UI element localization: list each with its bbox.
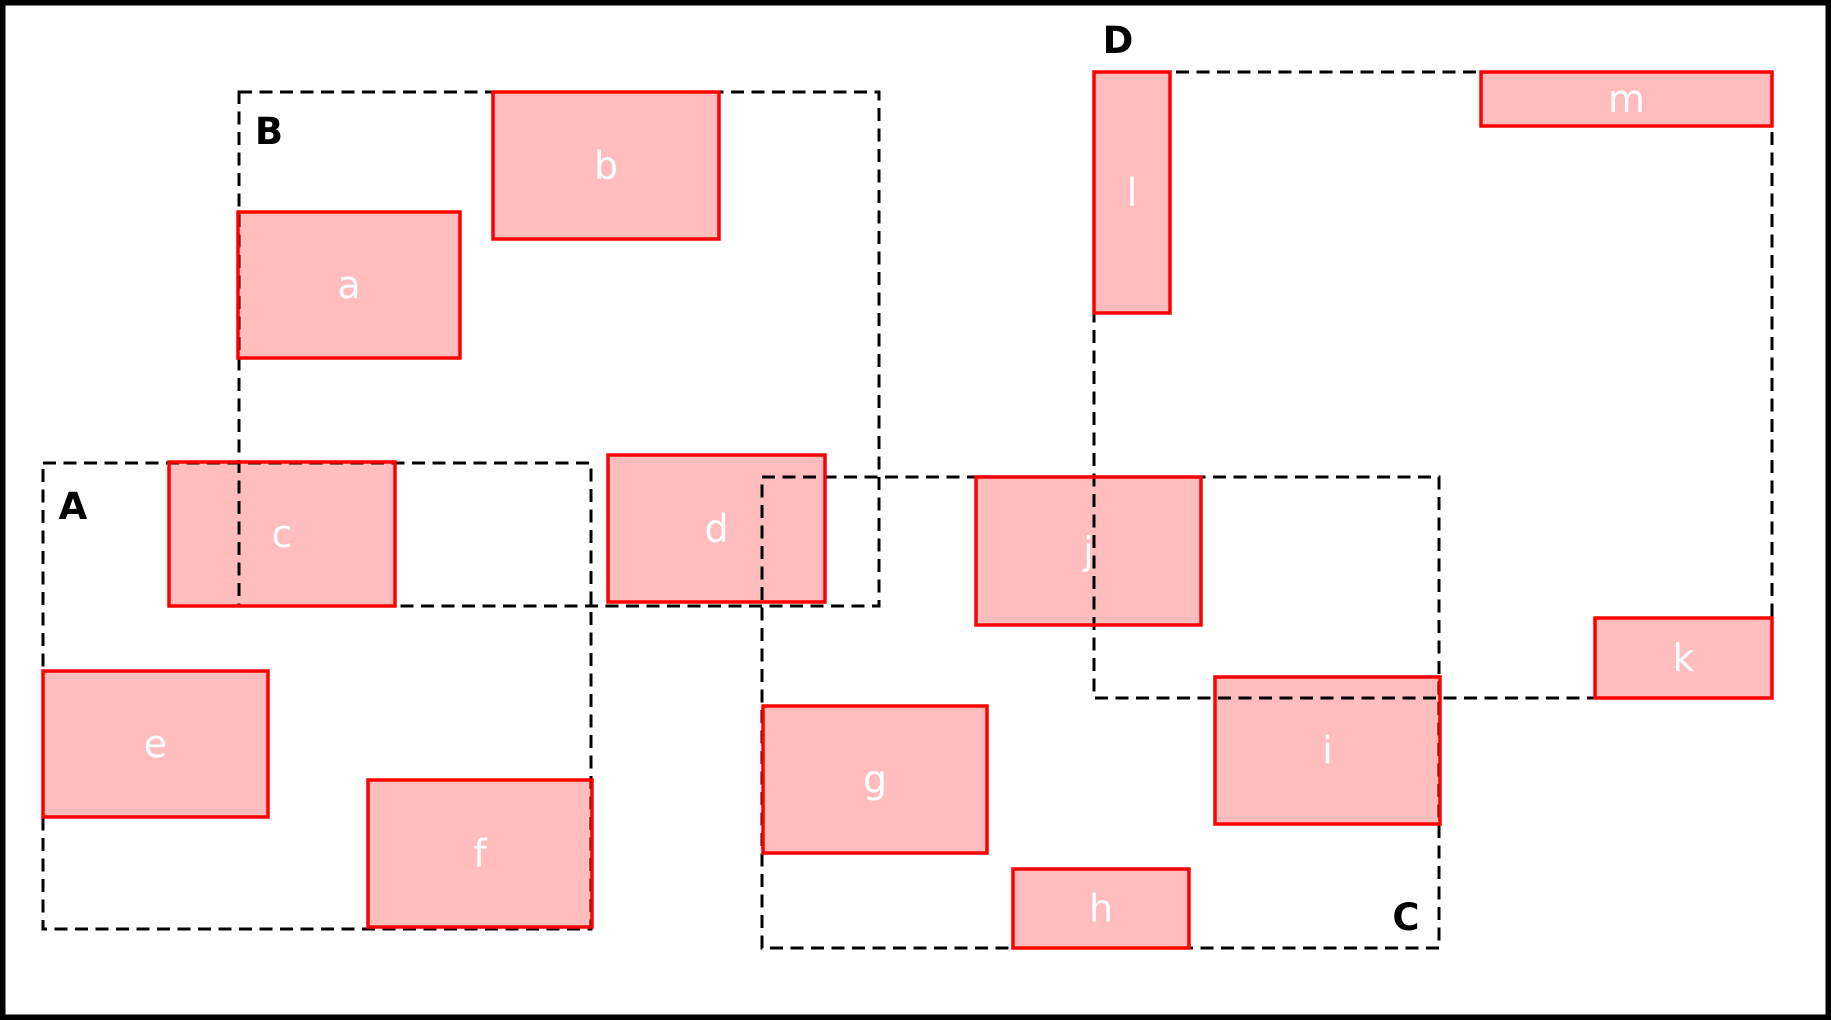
box-label-a: a xyxy=(337,263,360,307)
box-fill-layer xyxy=(43,72,1772,948)
diagram-canvas: abcdefghijklm ABCD xyxy=(0,0,1831,1020)
box-label-e: e xyxy=(144,722,167,766)
region-label-B: B xyxy=(255,110,283,153)
box-label-m: m xyxy=(1608,77,1645,121)
region-label-D: D xyxy=(1103,19,1134,62)
box-label-c: c xyxy=(272,512,293,556)
box-label-i: i xyxy=(1322,729,1333,773)
box-label-d: d xyxy=(704,507,728,551)
region-label-A: A xyxy=(59,485,88,528)
box-label-f: f xyxy=(473,832,488,876)
rectangles-diagram: abcdefghijklm ABCD xyxy=(0,0,1831,1020)
region-label-C: C xyxy=(1392,896,1419,939)
box-label-j: j xyxy=(1082,529,1094,573)
box-label-b: b xyxy=(594,144,618,188)
box-label-k: k xyxy=(1672,636,1694,680)
box-label-g: g xyxy=(863,758,887,802)
box-label-l: l xyxy=(1127,171,1138,215)
box-label-h: h xyxy=(1089,887,1113,931)
